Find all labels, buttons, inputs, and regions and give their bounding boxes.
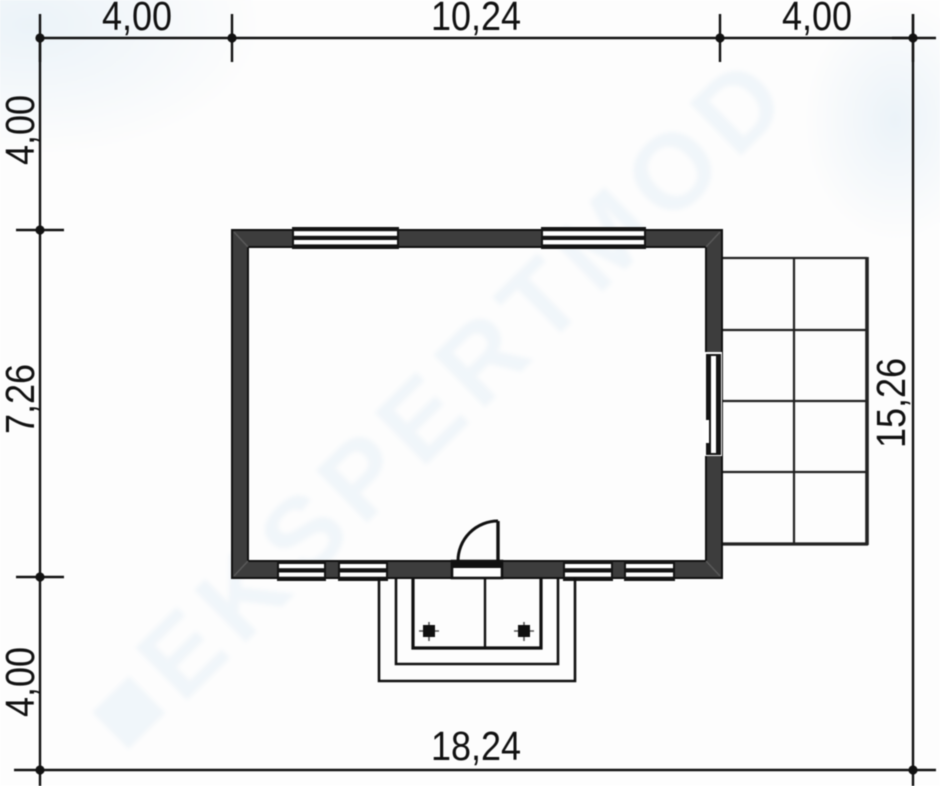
svg-text:4,00: 4,00 [102, 0, 172, 40]
svg-text:18,24: 18,24 [431, 724, 521, 770]
svg-text:7,26: 7,26 [0, 364, 44, 434]
svg-text:4,00: 4,00 [0, 647, 44, 717]
svg-text:15,26: 15,26 [869, 358, 915, 448]
svg-text:4,00: 4,00 [0, 95, 44, 165]
svg-text:10,24: 10,24 [431, 0, 521, 40]
svg-text:4,00: 4,00 [782, 0, 852, 40]
